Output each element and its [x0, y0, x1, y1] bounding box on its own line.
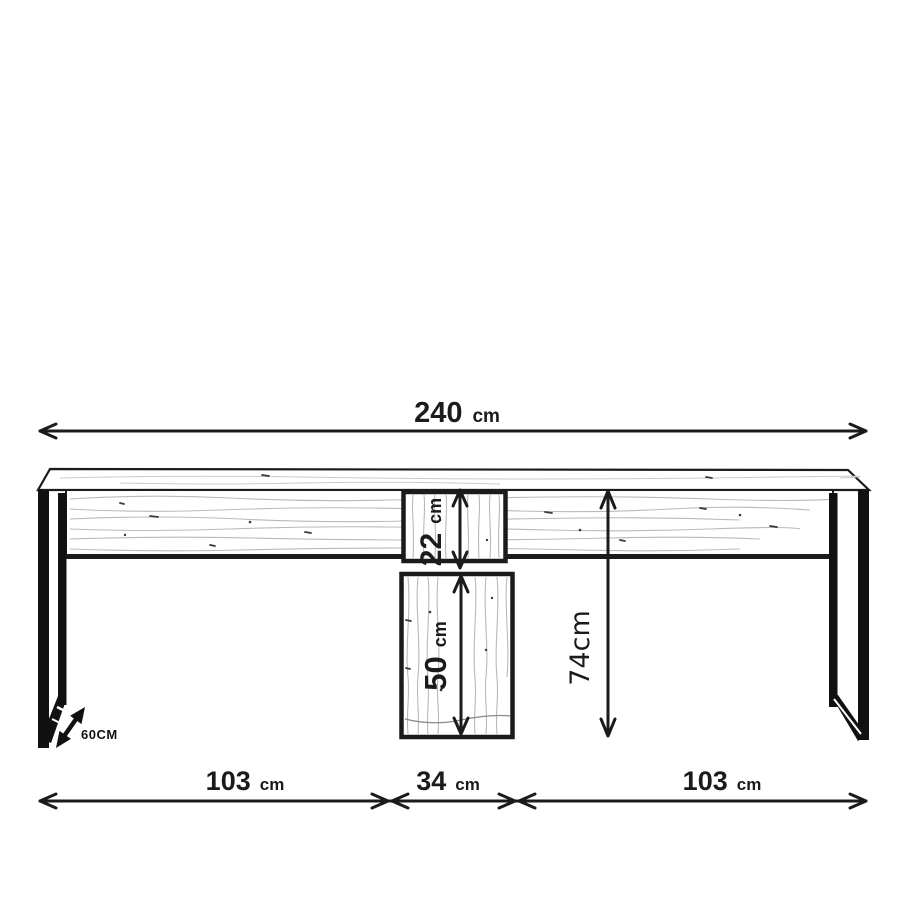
center-section-label: 34cm	[416, 766, 480, 796]
desk-tabletop	[38, 469, 869, 490]
diagram-canvas: 240cm 22cm 50cm 74cm 60CM	[0, 0, 900, 900]
dim-total-width: 240cm	[40, 397, 866, 438]
right-section-label: 103cm	[683, 766, 762, 796]
height-label: 74cm	[565, 610, 596, 686]
dim-bottom-sections: 103cm 34cm 103cm	[40, 766, 866, 808]
depth-label: 60CM	[81, 727, 118, 742]
desk-drawing	[38, 469, 869, 748]
total-width-label: 240cm	[414, 397, 500, 429]
front-right-leg	[858, 490, 869, 740]
dim-depth: 60CM	[56, 707, 118, 748]
desk-dimension-diagram: 240cm 22cm 50cm 74cm 60CM	[0, 0, 900, 900]
back-right-leg	[829, 493, 838, 707]
back-left-leg	[58, 493, 67, 705]
front-left-leg	[38, 490, 49, 748]
left-section-label: 103cm	[206, 766, 285, 796]
